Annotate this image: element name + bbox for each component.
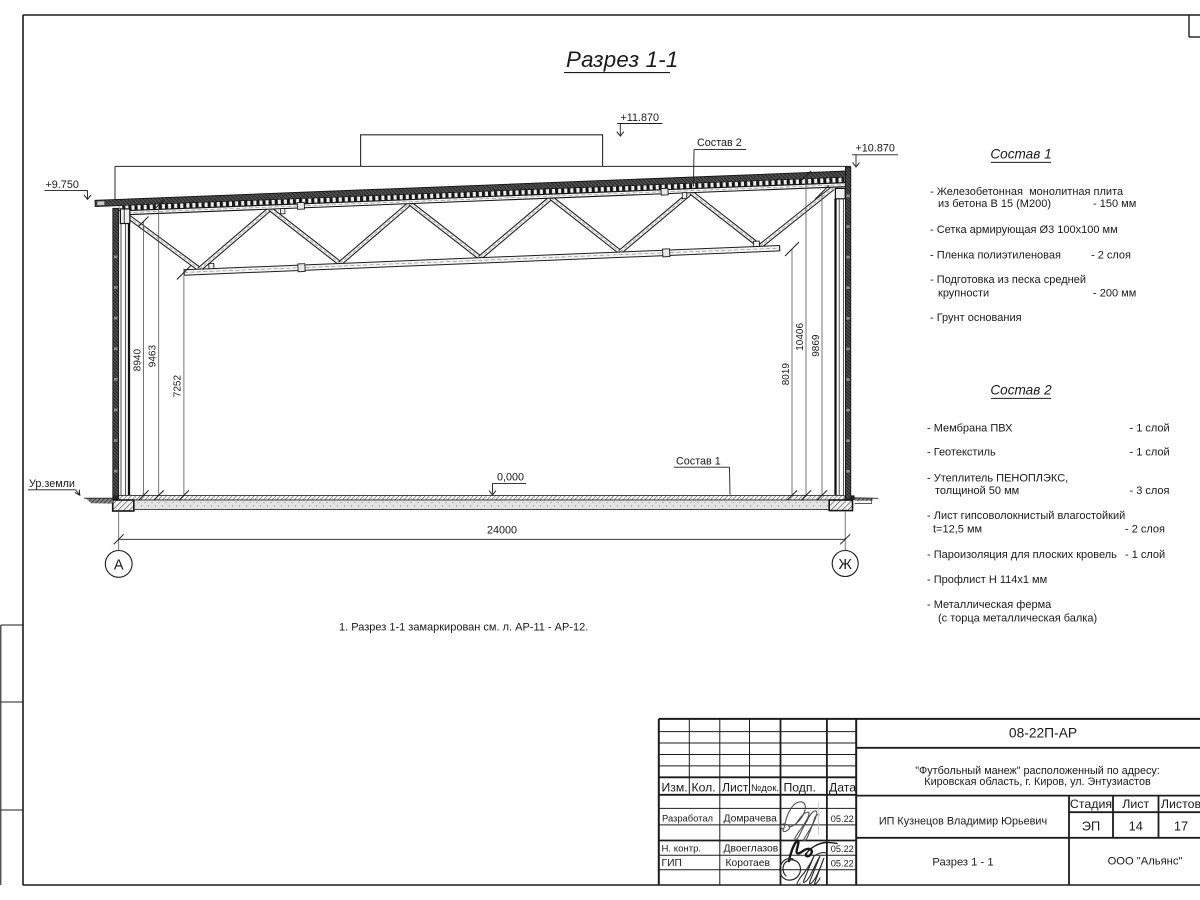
svg-text:Лист: Лист <box>722 780 749 794</box>
svg-text:05.22: 05.22 <box>831 858 854 868</box>
svg-text:- 1 слой: - 1 слой <box>1130 446 1170 458</box>
svg-text:ИП Кузнецов Владимир Юрьевич: ИП Кузнецов Владимир Юрьевич <box>879 815 1047 827</box>
svg-text:- Металлическая ферма: - Металлическая ферма <box>927 599 1052 611</box>
svg-text:Состав 1: Состав 1 <box>990 147 1051 162</box>
svg-text:Состав 1: Состав 1 <box>676 455 721 467</box>
svg-text:ООО "Альянс": ООО "Альянс" <box>1108 856 1183 868</box>
svg-text:17: 17 <box>1174 818 1188 833</box>
svg-text:t=12,5 мм: t=12,5 мм <box>933 523 982 535</box>
svg-text:1. Разрез 1-1 замаркирован см.: 1. Разрез 1-1 замаркирован см. л. АР-11 … <box>339 622 588 634</box>
svg-text:Н. контр.: Н. контр. <box>662 843 702 854</box>
svg-text:- Профлист Н 114х1 мм: - Профлист Н 114х1 мм <box>927 574 1047 586</box>
svg-text:0,000: 0,000 <box>497 471 524 483</box>
svg-text:Разрез 1 - 1: Разрез 1 - 1 <box>932 856 993 868</box>
svg-text:- 2 слоя: - 2 слоя <box>1091 250 1131 262</box>
svg-text:- 1 слой: - 1 слой <box>1125 549 1165 561</box>
svg-text:8019: 8019 <box>781 363 792 386</box>
svg-text:Разработал: Разработал <box>662 812 713 823</box>
svg-text:Дата: Дата <box>829 780 856 794</box>
svg-text:08-22П-АР: 08-22П-АР <box>1009 726 1077 741</box>
svg-text:24000: 24000 <box>487 525 517 537</box>
svg-text:10406: 10406 <box>795 323 806 351</box>
svg-text:- 2 слоя: - 2 слоя <box>1125 523 1165 535</box>
svg-text:- Подготовка из песка средней: - Подготовка из песка средней <box>930 274 1086 286</box>
svg-text:05.22: 05.22 <box>831 844 854 854</box>
svg-text:Состав 2: Состав 2 <box>697 137 742 149</box>
svg-text:ЭП: ЭП <box>1082 818 1100 833</box>
svg-text:- Лист гипсоволокнистый влагос: - Лист гипсоволокнистый влагостойкий <box>927 510 1125 522</box>
svg-text:Лист: Лист <box>1122 797 1149 811</box>
svg-text:Подп.: Подп. <box>784 780 816 794</box>
svg-text:9463: 9463 <box>148 345 159 368</box>
svg-text:Домрачева: Домрачева <box>724 814 778 825</box>
svg-text:(с торца металлическая балка): (с торца металлическая балка) <box>938 612 1097 624</box>
svg-text:- 1 слой: - 1 слой <box>1130 422 1170 434</box>
svg-text:- Мембрана ПВХ: - Мембрана ПВХ <box>927 422 1013 434</box>
svg-text:Коротаев: Коротаев <box>726 858 771 869</box>
svg-text:- Утеплитель ПЕНОПЛЭКС,: - Утеплитель ПЕНОПЛЭКС, <box>927 472 1068 484</box>
svg-text:Кировская область, г. Киров, у: Кировская область, г. Киров, ул. Энтузиа… <box>924 776 1151 788</box>
svg-text:+10.870: +10.870 <box>856 143 895 155</box>
svg-text:Листов: Листов <box>1161 797 1200 811</box>
svg-text:толщиной 50 мм: толщиной 50 мм <box>935 485 1019 497</box>
svg-text:А: А <box>114 557 124 573</box>
svg-text:14: 14 <box>1129 818 1143 833</box>
svg-text:- 200 мм: - 200 мм <box>1093 287 1136 299</box>
svg-text:Двоеглазов: Двоеглазов <box>724 844 779 855</box>
svg-text:- 3 слоя: - 3 слоя <box>1130 485 1170 497</box>
svg-text:Стадия: Стадия <box>1070 797 1112 811</box>
svg-text:крупности: крупности <box>938 287 989 299</box>
svg-text:+9.750: +9.750 <box>46 179 79 191</box>
svg-text:из бетона В 15 (М200): из бетона В 15 (М200) <box>938 198 1051 210</box>
svg-text:Состав 2: Состав 2 <box>990 383 1052 398</box>
svg-text:- Сетка армирующая Ø3 100х100: - Сетка армирующая Ø3 100х100 мм <box>930 224 1118 236</box>
svg-text:- Пленка полиэтиленовая: - Пленка полиэтиленовая <box>930 250 1061 262</box>
svg-text:Изм.: Изм. <box>662 780 688 794</box>
svg-text:- Геотекстиль: - Геотекстиль <box>927 446 996 458</box>
svg-text:05.22: 05.22 <box>831 814 854 824</box>
svg-text:- Железобетонная монолитная п: - Железобетонная монолитная плита <box>930 186 1124 198</box>
svg-text:- Пароизоляция для плоских кро: - Пароизоляция для плоских кровель <box>927 549 1117 561</box>
svg-text:Ур.земли: Ур.земли <box>29 478 75 490</box>
svg-text:Ж: Ж <box>839 557 853 573</box>
svg-text:Кол.: Кол. <box>692 780 716 794</box>
svg-text:Разрез 1-1: Разрез 1-1 <box>566 47 678 72</box>
svg-text:"Футбольный манеж" расположенн: "Футбольный манеж" расположенный по адре… <box>915 765 1160 777</box>
svg-text:8940: 8940 <box>132 349 143 372</box>
svg-text:9869: 9869 <box>811 334 822 357</box>
svg-text:- Грунт основания: - Грунт основания <box>930 312 1022 324</box>
svg-text:+11.870: +11.870 <box>621 112 660 124</box>
svg-text:7252: 7252 <box>173 375 184 398</box>
svg-text:№док.: №док. <box>751 783 779 794</box>
svg-text:ГИП: ГИП <box>662 858 682 869</box>
svg-text:- 150 мм: - 150 мм <box>1093 198 1136 210</box>
